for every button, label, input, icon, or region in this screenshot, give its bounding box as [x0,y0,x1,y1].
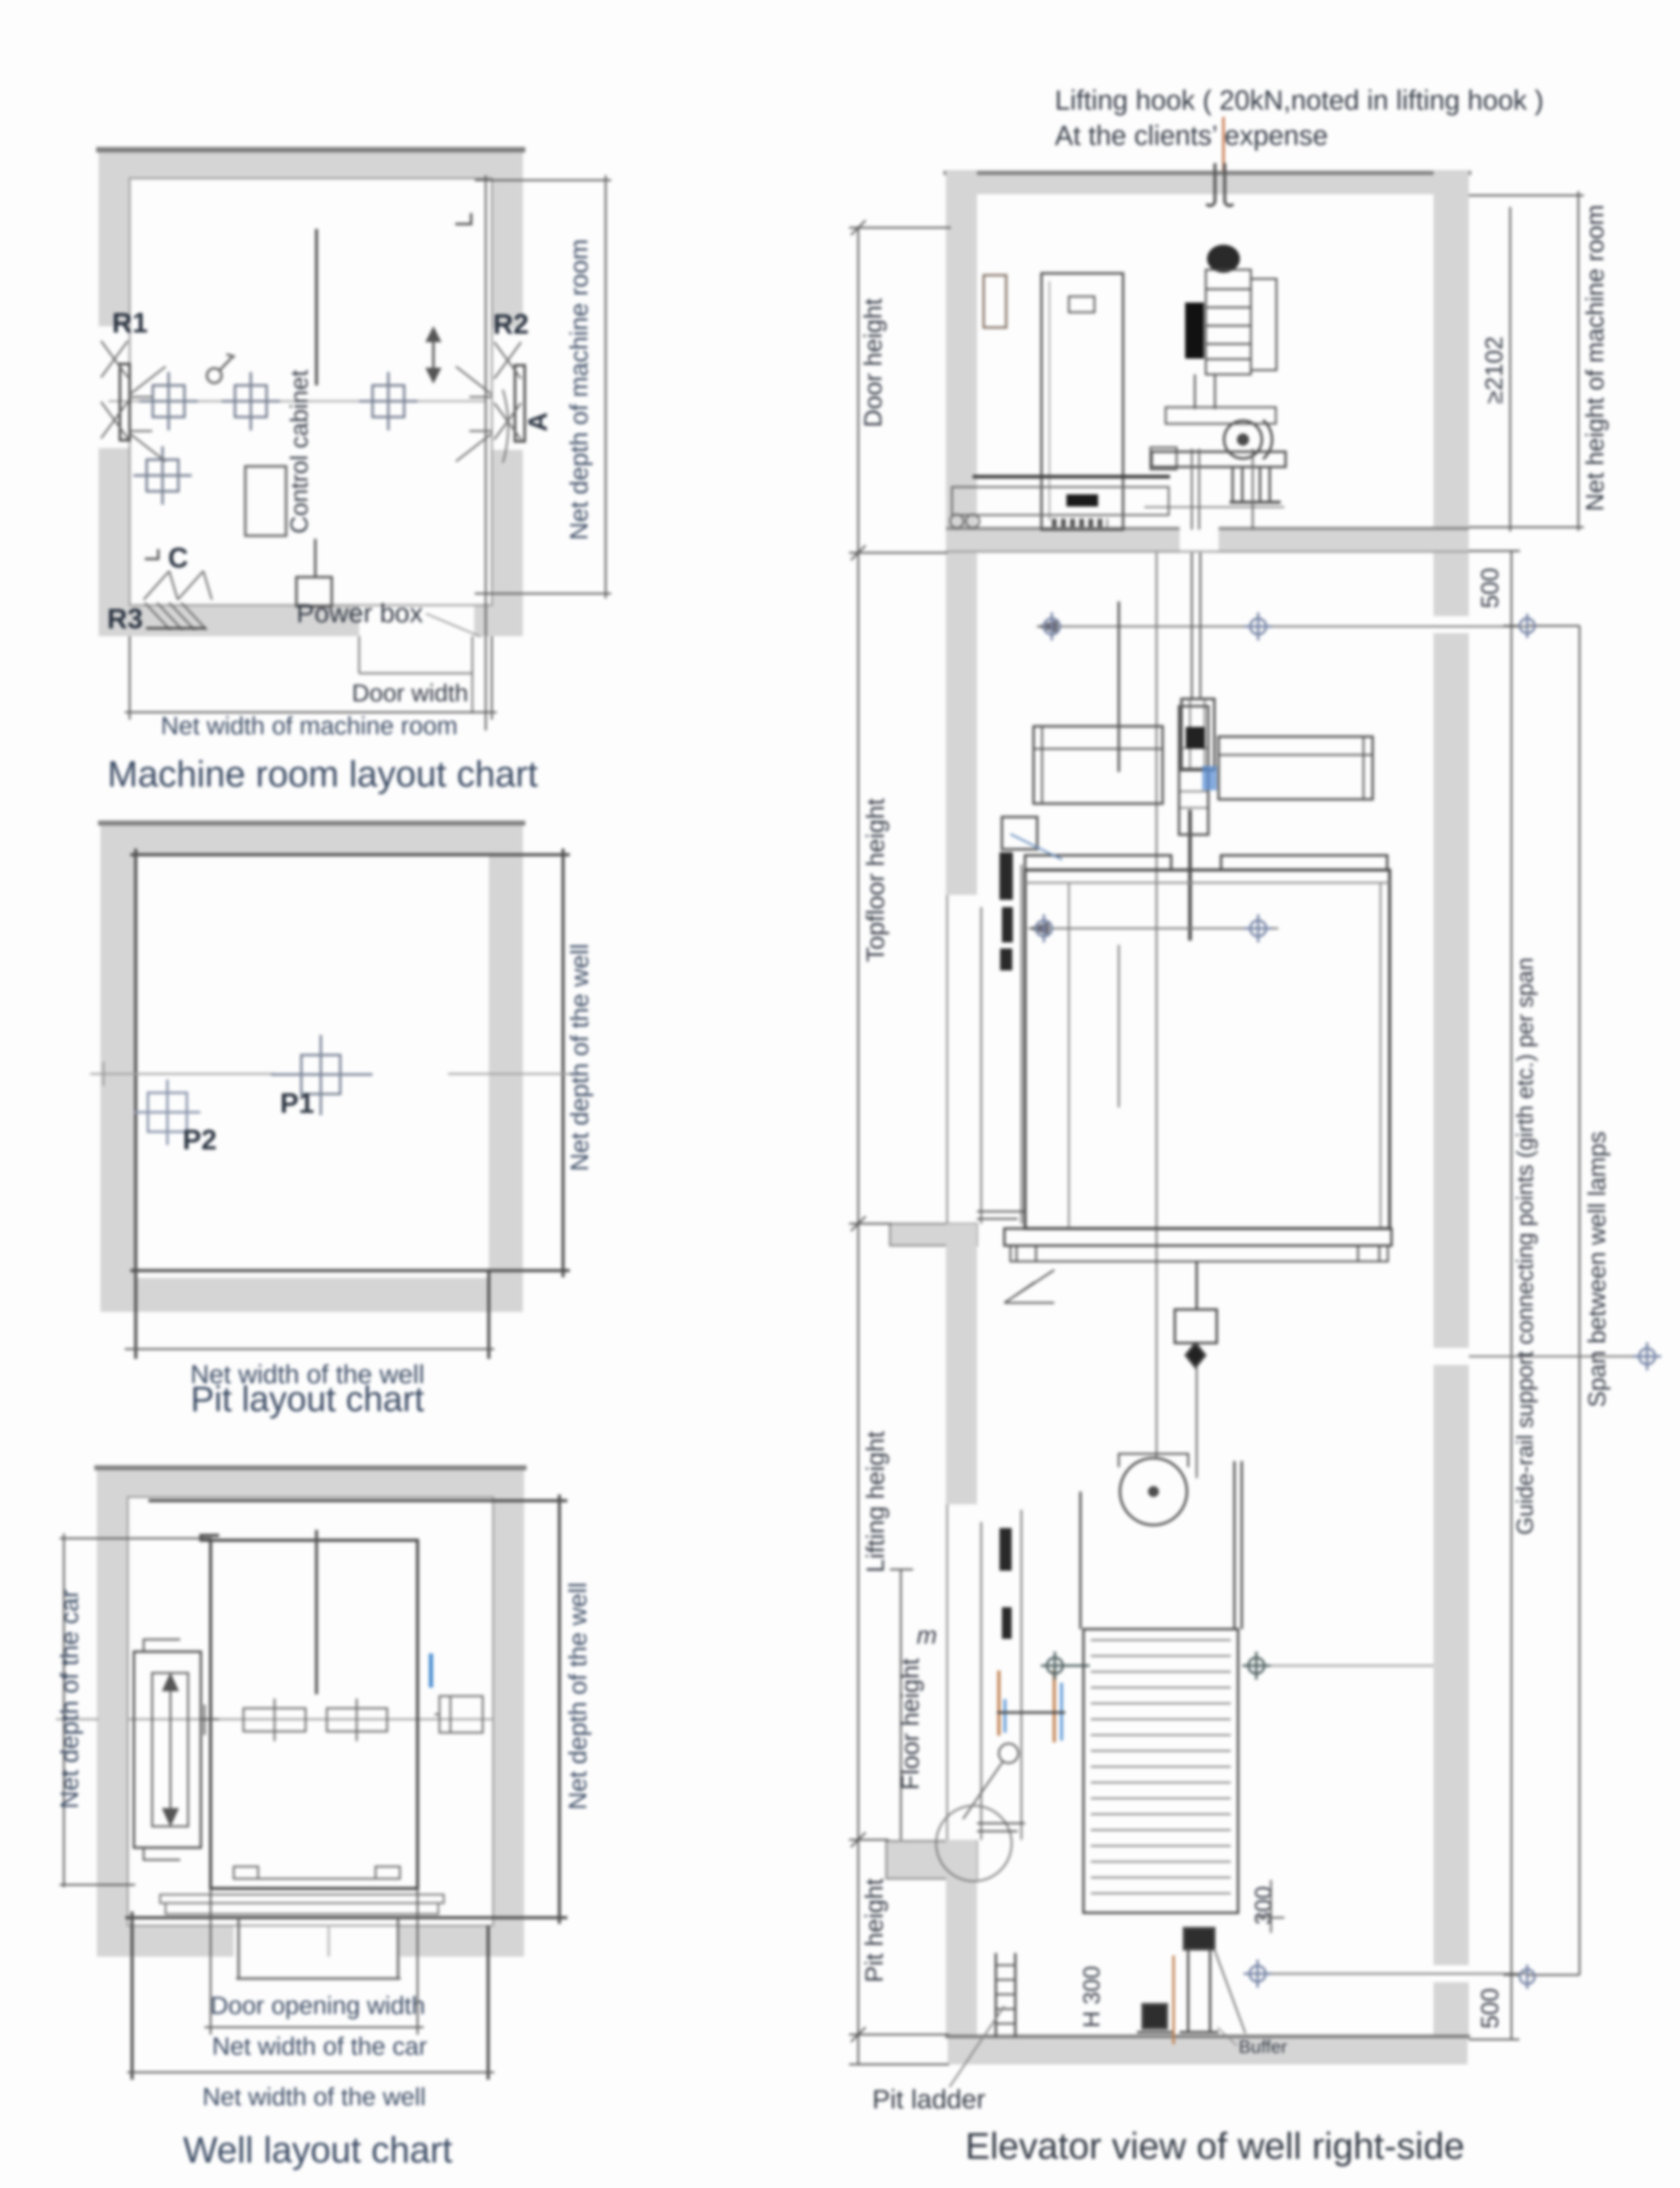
svg-text:Net depth of machine room: Net depth of machine room [565,239,593,541]
svg-text:Topfloor height: Topfloor height [861,798,889,963]
svg-text:Net depth of the car: Net depth of the car [55,1590,83,1809]
svg-text:500: 500 [1477,568,1503,609]
svg-text:Span between well lamps: Span between well lamps [1584,1131,1611,1408]
svg-text:P1: P1 [280,1087,314,1119]
svg-text:Lifting hook ( 20kN,noted in l: Lifting hook ( 20kN,noted in lifting hoo… [1055,85,1544,116]
svg-text:m: m [917,1622,937,1649]
svg-text:R1: R1 [112,307,148,338]
svg-text:Guide-rail support connecting: Guide-rail support connecting points (gi… [1513,958,1538,1535]
svg-text:Elevator view of well right-si: Elevator view of well right-side [965,2125,1465,2167]
svg-text:Control cabinet: Control cabinet [286,370,313,533]
svg-text:Net width of the well: Net width of the well [203,2083,426,2111]
svg-text:Power box: Power box [296,598,423,628]
svg-text:Lifting height: Lifting height [861,1431,889,1573]
svg-text:Well layout chart: Well layout chart [183,2130,453,2170]
svg-text:≥2102: ≥2102 [1481,337,1508,404]
svg-text:P2: P2 [183,1124,217,1155]
svg-text:Net width of the car: Net width of the car [212,2032,427,2060]
svg-text:Pit height: Pit height [860,1878,888,1983]
svg-text:Door opening width: Door opening width [210,1991,425,2019]
svg-text:Door height: Door height [859,298,887,427]
svg-text:Net width of machine room: Net width of machine room [161,712,458,740]
svg-text:At the clients’ expense: At the clients’ expense [1055,120,1328,151]
svg-text:Buffer: Buffer [1239,2037,1287,2057]
svg-text:Net depth of the well: Net depth of the well [565,944,593,1171]
svg-text:Door width: Door width [352,680,468,707]
svg-text:Net height of machine room: Net height of machine room [1581,205,1609,511]
svg-text:Net depth of the well: Net depth of the well [564,1582,592,1810]
svg-text:300: 300 [1251,1886,1276,1924]
svg-text:R2: R2 [493,308,529,340]
svg-text:Pit layout chart: Pit layout chart [191,1380,424,1419]
svg-text:Machine room layout chart: Machine room layout chart [108,754,538,794]
svg-text:Floor height: Floor height [896,1658,924,1790]
svg-text:R3: R3 [107,603,143,634]
svg-text:H 300: H 300 [1079,1966,1105,2027]
svg-text:C: C [168,542,188,573]
svg-text:A: A [523,412,553,432]
svg-text:Pit ladder: Pit ladder [872,2085,985,2114]
svg-text:500: 500 [1477,1988,1503,2029]
